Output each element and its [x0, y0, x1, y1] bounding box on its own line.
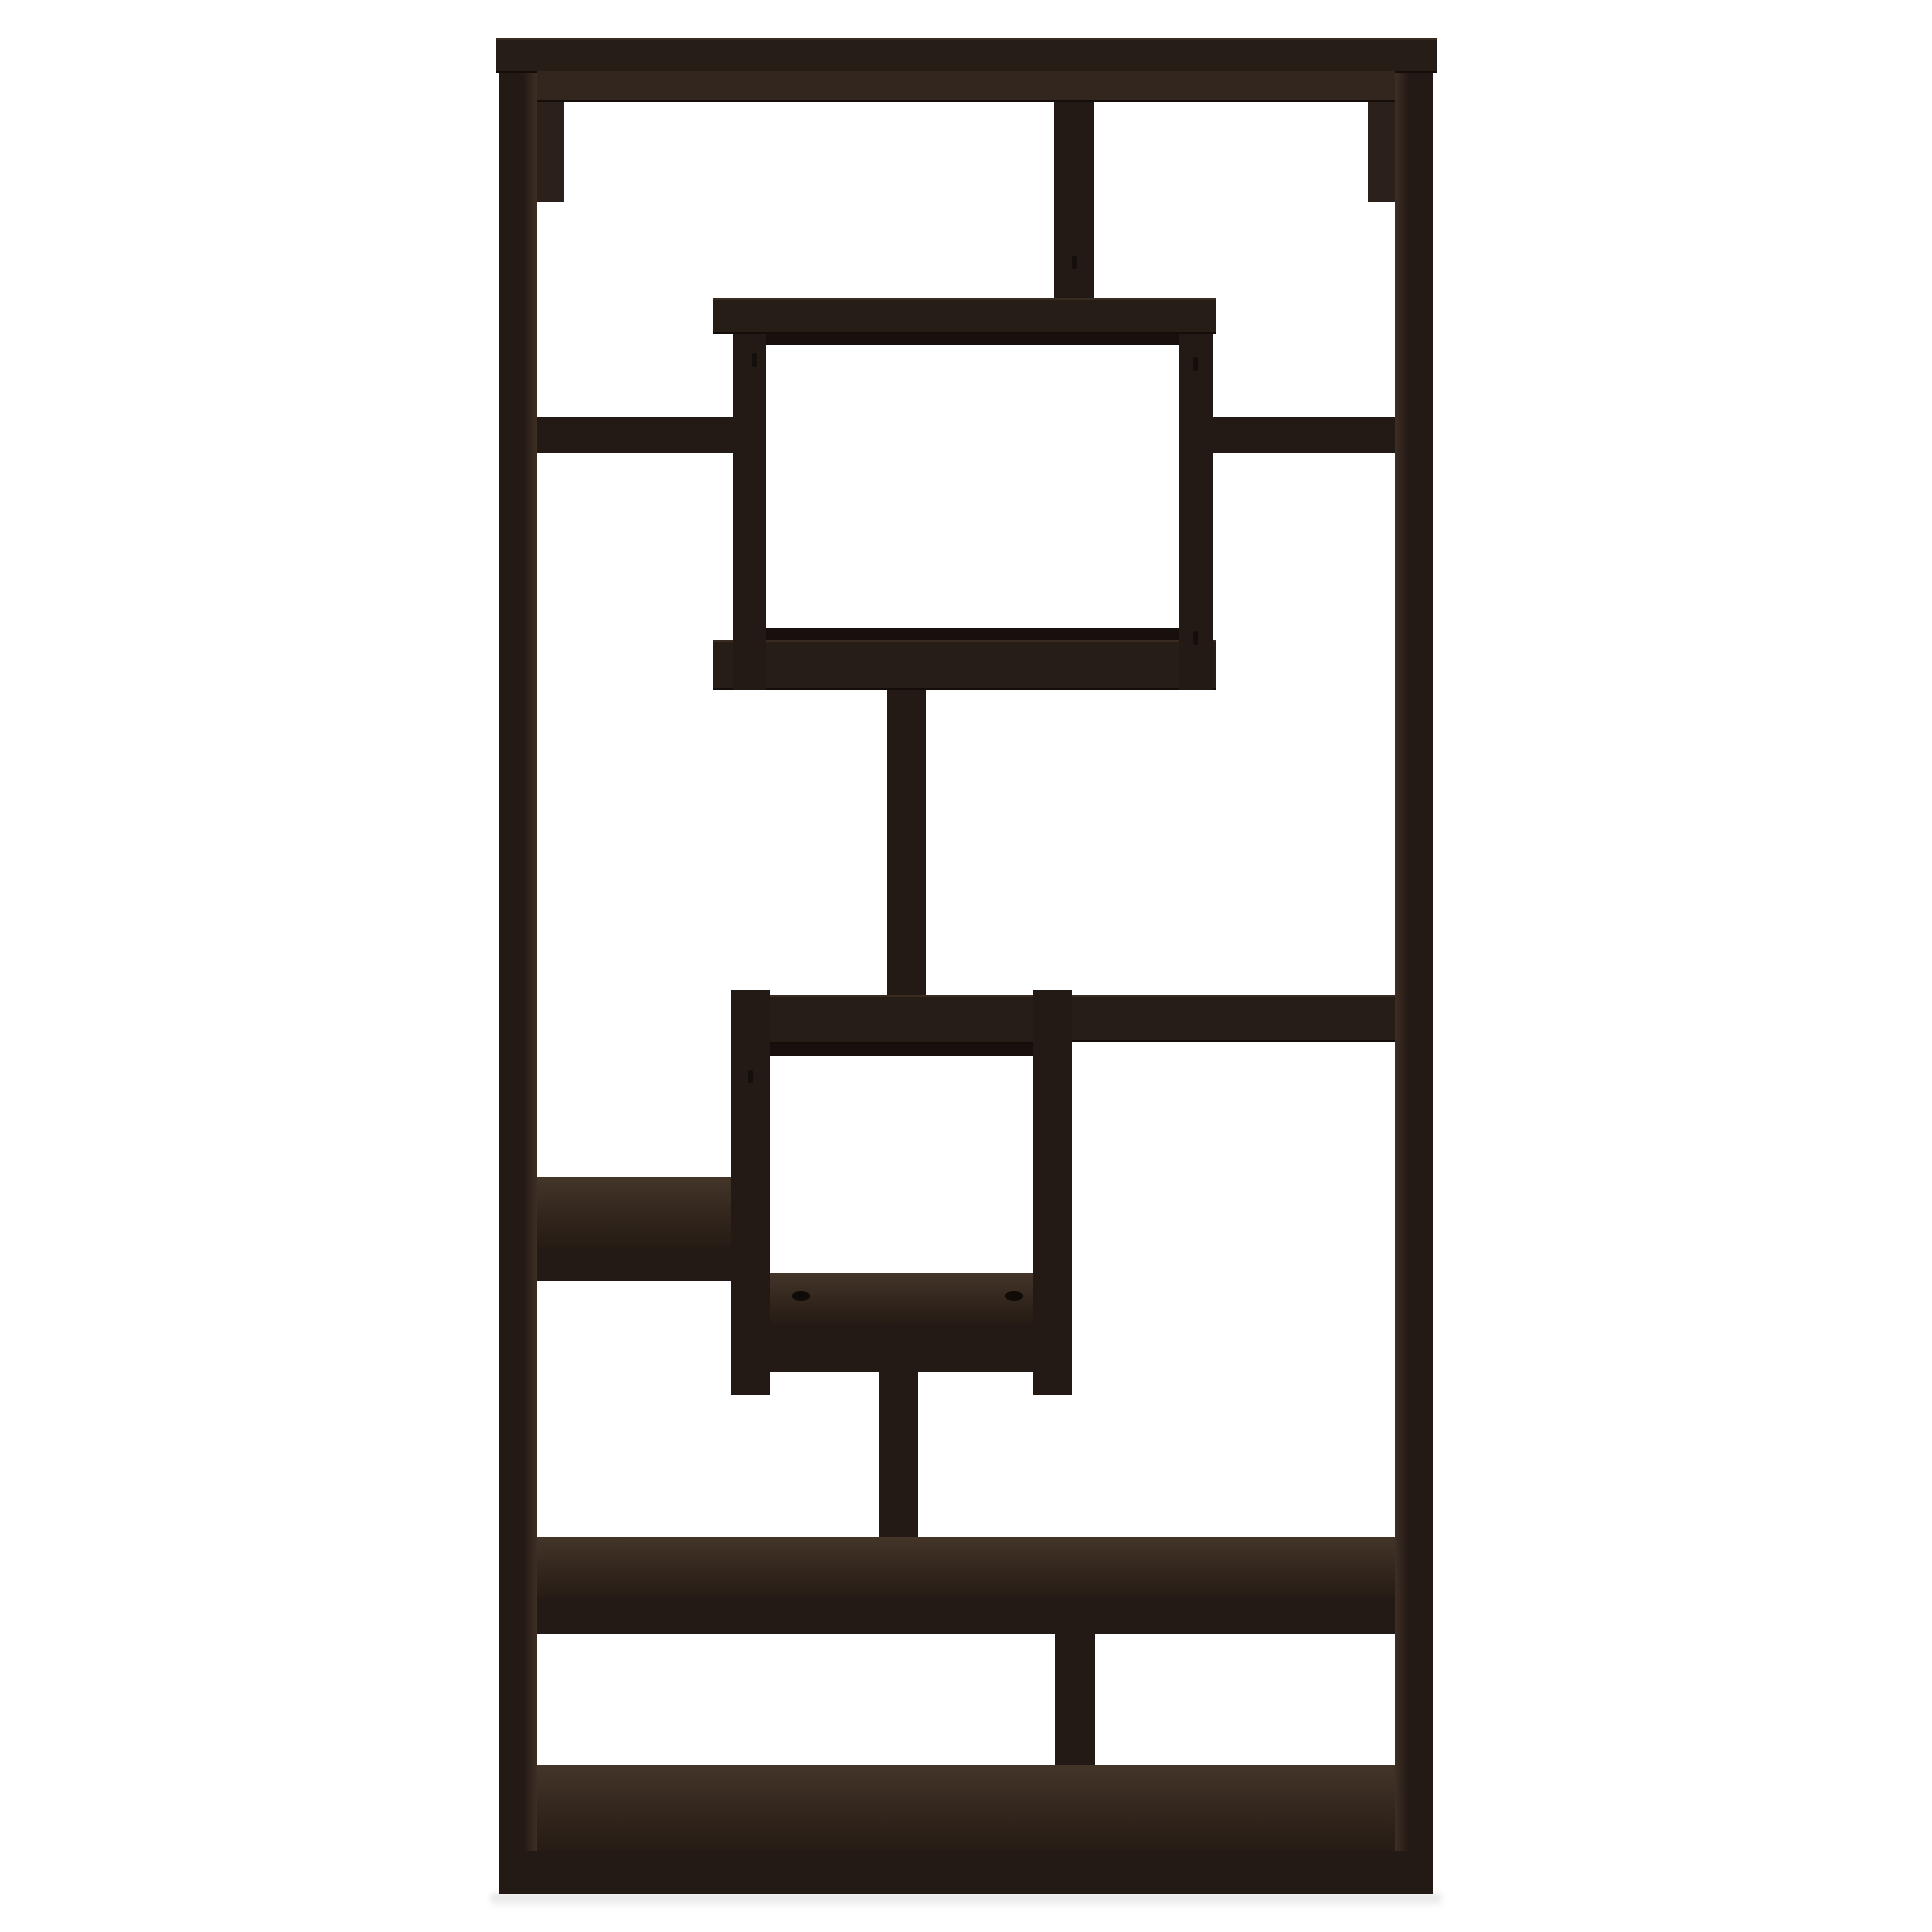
middle-box-under-lip [770, 1044, 1033, 1056]
mid-right-rail [1213, 417, 1395, 453]
pin-hole-left [792, 1291, 810, 1301]
top-divider [1054, 102, 1094, 300]
corner-block-right [1368, 102, 1395, 202]
pin-dash-top-divider [1072, 256, 1077, 269]
middle-box-bottom-top [770, 1273, 1033, 1324]
right-rail [1072, 995, 1395, 1042]
long-shelf-front [537, 1598, 1395, 1634]
lower-stem [879, 1372, 918, 1537]
product-photo [0, 0, 1932, 1932]
upper-box-top-board [713, 298, 1216, 334]
middle-box-right-panel [1033, 990, 1072, 1395]
upper-box-left-side [733, 334, 766, 690]
middle-box-top-board [770, 995, 1033, 1044]
corner-block-left [537, 102, 564, 202]
right-post [1395, 73, 1433, 1851]
left-shelf-front [537, 1247, 731, 1281]
upper-box-bottom-board [713, 640, 1216, 690]
base-top [537, 1765, 1395, 1851]
left-post [499, 73, 537, 1851]
bottom-divider [1055, 1634, 1095, 1765]
pin-dash-upper-right-side [1193, 357, 1198, 371]
upper-box-under-lip [766, 334, 1179, 345]
middle-box-left-panel [731, 990, 770, 1395]
upper-stem [887, 690, 926, 995]
pin-dash-middle-box-panel [748, 1070, 753, 1083]
top-under-rail [537, 71, 1395, 102]
base-front [499, 1851, 1433, 1894]
bookcase [0, 0, 1932, 1932]
top-board [496, 38, 1437, 73]
floor-shadow [491, 1894, 1441, 1908]
left-shelf-top [537, 1177, 731, 1247]
middle-box-bottom-front [770, 1324, 1033, 1372]
pin-dash-lower-right-side [1193, 631, 1198, 645]
pin-hole-right [1005, 1291, 1023, 1301]
upper-box-bottom-lip [766, 628, 1179, 640]
long-shelf-top [537, 1537, 1395, 1598]
pin-dash-upper-left-side [752, 353, 757, 367]
mid-left-rail [537, 417, 733, 453]
